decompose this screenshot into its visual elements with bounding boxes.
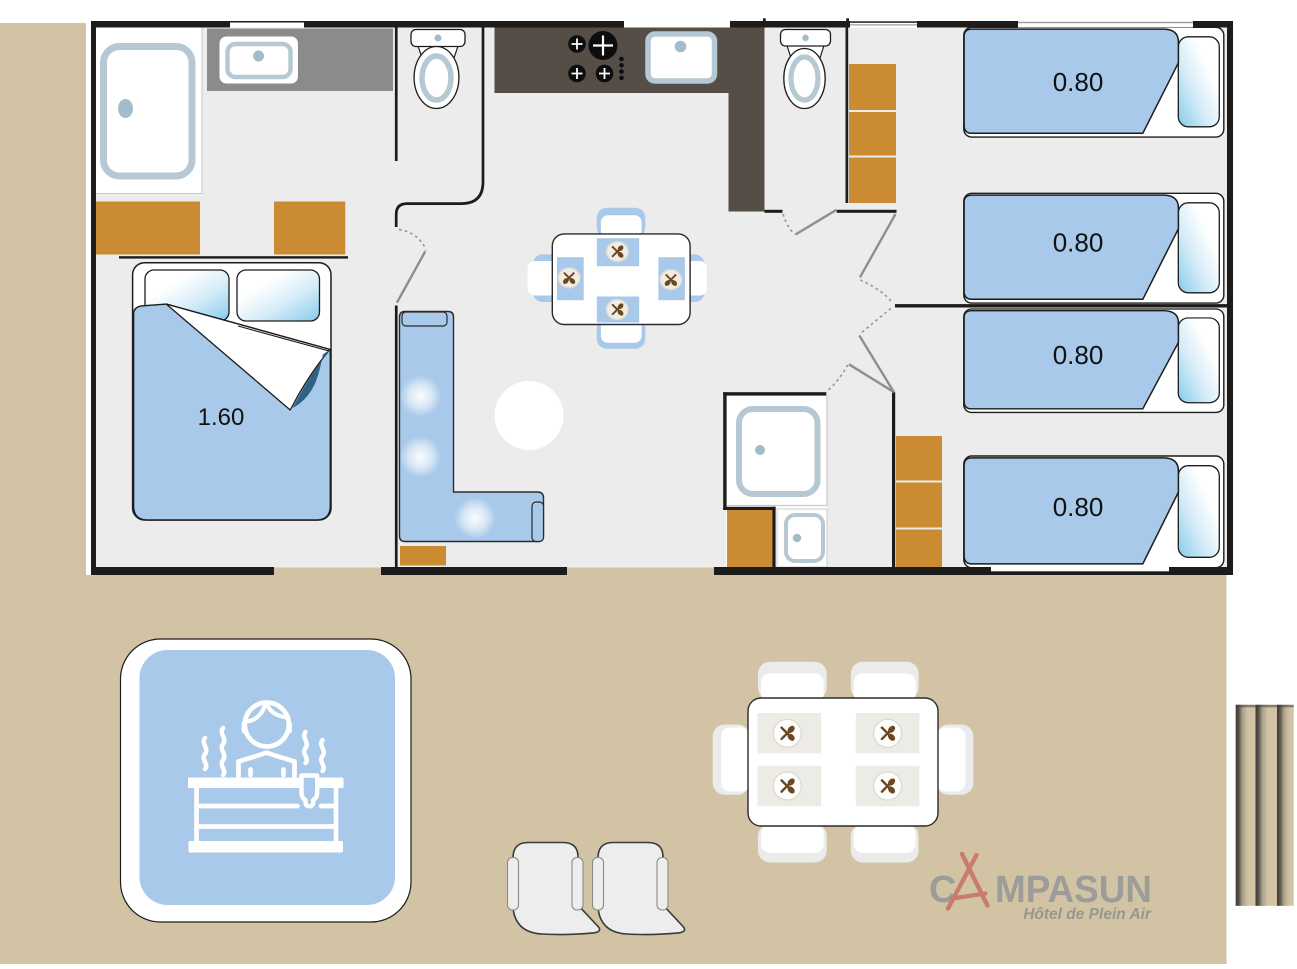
svg-text:MPASUN: MPASUN: [995, 869, 1152, 911]
svg-text:0.80: 0.80: [1053, 67, 1104, 97]
svg-text:0.80: 0.80: [1053, 492, 1104, 522]
svg-text:Hôtel de Plein Air: Hôtel de Plein Air: [1023, 906, 1152, 923]
svg-text:1.60: 1.60: [198, 404, 245, 431]
svg-text:0.80: 0.80: [1053, 228, 1104, 258]
svg-text:0.80: 0.80: [1053, 340, 1104, 370]
